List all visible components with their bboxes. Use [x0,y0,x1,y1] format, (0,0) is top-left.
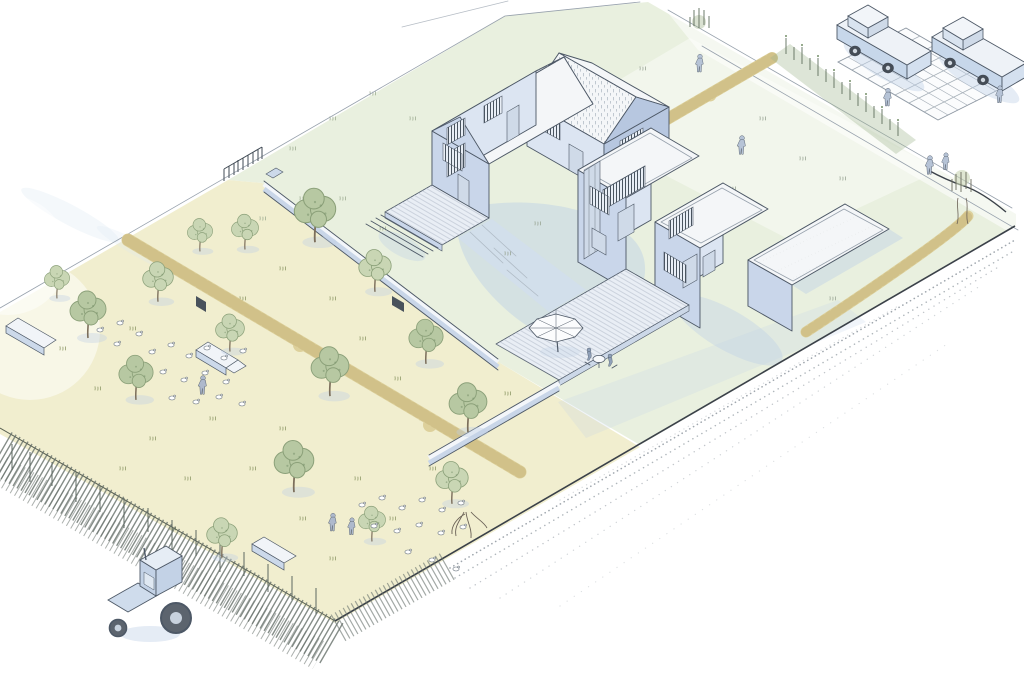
patio-table [593,355,605,362]
tractor [108,546,191,642]
garden-plot-illustration: Hand-drawn axonometric illustration of a… [0,0,1024,683]
illustration-page: Hand-drawn axonometric illustration of a… [0,0,1024,683]
person-walking [883,88,891,106]
goose [453,566,460,571]
